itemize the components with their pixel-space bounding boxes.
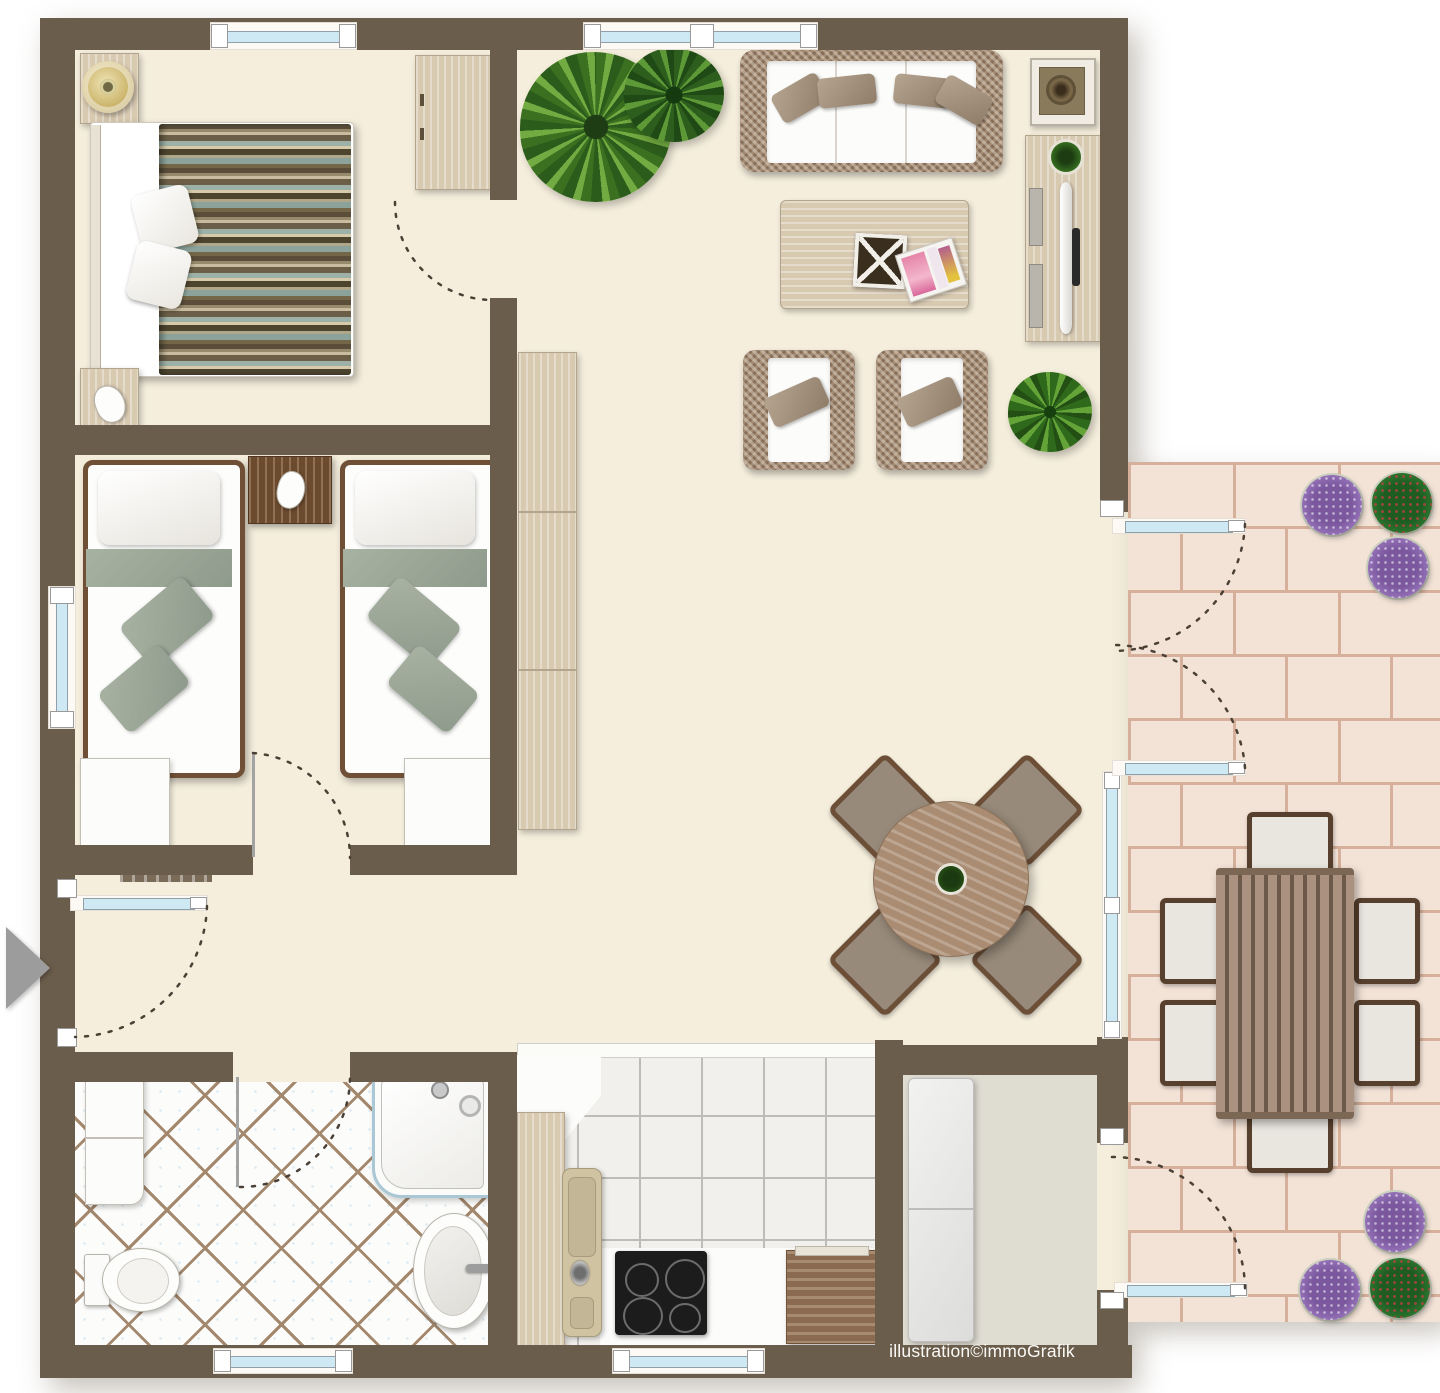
patio-door-leaf-lower <box>1112 760 1246 776</box>
wardrobe <box>415 55 492 190</box>
window-bedroom <box>210 22 357 50</box>
wall-bedroom-kids-divider <box>75 425 517 455</box>
bathroom-door-leaf <box>236 1077 239 1187</box>
window-bathroom <box>213 1348 353 1374</box>
kitchen-base-cabinet <box>786 1250 877 1344</box>
outdoor-dining-table <box>1216 868 1354 1119</box>
bed-pillow <box>355 471 475 545</box>
kids-nightstand <box>248 456 332 524</box>
sofa-pillow-2 <box>817 73 878 109</box>
wicker-sofa <box>740 50 1003 172</box>
door-frame-cap <box>1100 1128 1124 1145</box>
sage-pillow-2 <box>386 643 481 734</box>
table-centerpiece-plant <box>938 866 964 892</box>
duvet-band <box>343 549 487 587</box>
window-kitchen <box>612 1348 765 1374</box>
storage-cabinet-divider <box>909 1208 973 1210</box>
armchair-left <box>743 350 855 470</box>
round-dining-table <box>873 801 1029 957</box>
telephone <box>273 468 310 512</box>
wall-kids-bottom-left <box>75 845 253 875</box>
leafy-plant <box>624 48 724 142</box>
washbasin <box>413 1213 495 1329</box>
entrance-arrow-icon <box>6 927 50 1009</box>
wall-storage-top <box>875 1045 1128 1075</box>
patio-chair-right-1 <box>1354 898 1420 984</box>
side-table <box>1030 58 1096 126</box>
kitchen-cabinet-strip <box>517 1112 565 1347</box>
tall-cabinet <box>518 352 577 830</box>
burner-1 <box>625 1263 659 1297</box>
flower-pot-green-2 <box>1370 1258 1430 1318</box>
door-frame-cap <box>1100 1292 1124 1309</box>
toilet-seat <box>117 1258 169 1304</box>
tv-speaker-2 <box>1029 264 1043 328</box>
flower-pot-purple-4 <box>1300 1260 1360 1320</box>
flower-pot-purple-3 <box>1365 1192 1425 1252</box>
shower <box>372 1070 493 1198</box>
bed-pillow <box>98 471 220 545</box>
sideboard-plant <box>1051 142 1081 172</box>
burner-4 <box>669 1303 701 1333</box>
wardrobe-handle-2 <box>420 128 424 140</box>
lamp-center <box>100 79 116 95</box>
patio-chair-right-2 <box>1354 1000 1420 1086</box>
single-bed-left <box>83 460 245 778</box>
door-frame-cap <box>1100 500 1124 517</box>
flower-pot-purple-1 <box>1302 475 1362 535</box>
table-lamp <box>82 61 134 113</box>
window-living <box>583 22 818 50</box>
foot-cabinet-right <box>404 758 494 856</box>
kids-door-leaf <box>252 753 255 857</box>
door-frame-cap <box>57 879 77 898</box>
burner-3 <box>623 1297 663 1335</box>
sink-basin-large <box>568 1177 596 1257</box>
sage-pillow-2 <box>97 643 192 734</box>
foot-cabinet-left <box>80 758 170 856</box>
door-frame-cap <box>57 1028 77 1047</box>
cooktop <box>615 1251 707 1335</box>
decor-bowl <box>1049 78 1073 102</box>
window-panel-patio <box>1102 771 1122 1039</box>
wall-bath-kitchen <box>488 1052 517 1345</box>
wall-bedroom-right-upper <box>490 50 517 200</box>
flower-pot-purple-2 <box>1368 538 1428 598</box>
tv-stand <box>1072 228 1080 286</box>
cabinet-divider-1 <box>519 511 576 513</box>
floor-plan: illustration©immoGrafik <box>0 0 1440 1393</box>
wall-kitchen-storage <box>875 1040 903 1345</box>
wardrobe-handle-1 <box>420 94 424 106</box>
single-bed-right <box>340 460 500 778</box>
wall-bedroom-right-lower <box>490 298 517 875</box>
burner-2 <box>665 1259 705 1299</box>
cabinet-handle-rail <box>795 1246 869 1256</box>
washing-machine-bottom <box>85 1138 144 1205</box>
telephone <box>90 381 130 426</box>
duvet-band <box>86 549 232 587</box>
flower-pot-green-1 <box>1372 473 1432 533</box>
wall-right-upper <box>1100 18 1128 512</box>
storage-cabinet <box>908 1078 974 1342</box>
kitchen-sink <box>562 1168 602 1337</box>
watermark: illustration©immoGrafik <box>862 1341 1102 1365</box>
storage-patio-door-leaf <box>1114 1282 1248 1298</box>
cabinet-divider-2 <box>519 669 576 671</box>
entry-door-leaf <box>70 895 208 911</box>
double-bed <box>90 122 354 377</box>
coffee-table <box>780 200 969 309</box>
patio-door-leaf-upper <box>1112 518 1246 534</box>
green-bush <box>1008 372 1092 452</box>
toilet-bowl <box>102 1248 180 1312</box>
sink-faucet <box>571 1261 589 1285</box>
wall-kids-bottom-right <box>350 845 517 875</box>
tv-speaker-1 <box>1029 188 1043 246</box>
wall-bath-top-left <box>75 1052 233 1082</box>
window-kids-room <box>48 586 76 729</box>
shower-drain <box>459 1095 481 1117</box>
tv-screen <box>1060 182 1072 334</box>
armchair-right <box>876 350 988 470</box>
bed-headboard <box>91 125 101 374</box>
striped-duvet <box>159 124 351 375</box>
shower-head <box>431 1081 449 1099</box>
sink-basin-small <box>570 1297 594 1329</box>
